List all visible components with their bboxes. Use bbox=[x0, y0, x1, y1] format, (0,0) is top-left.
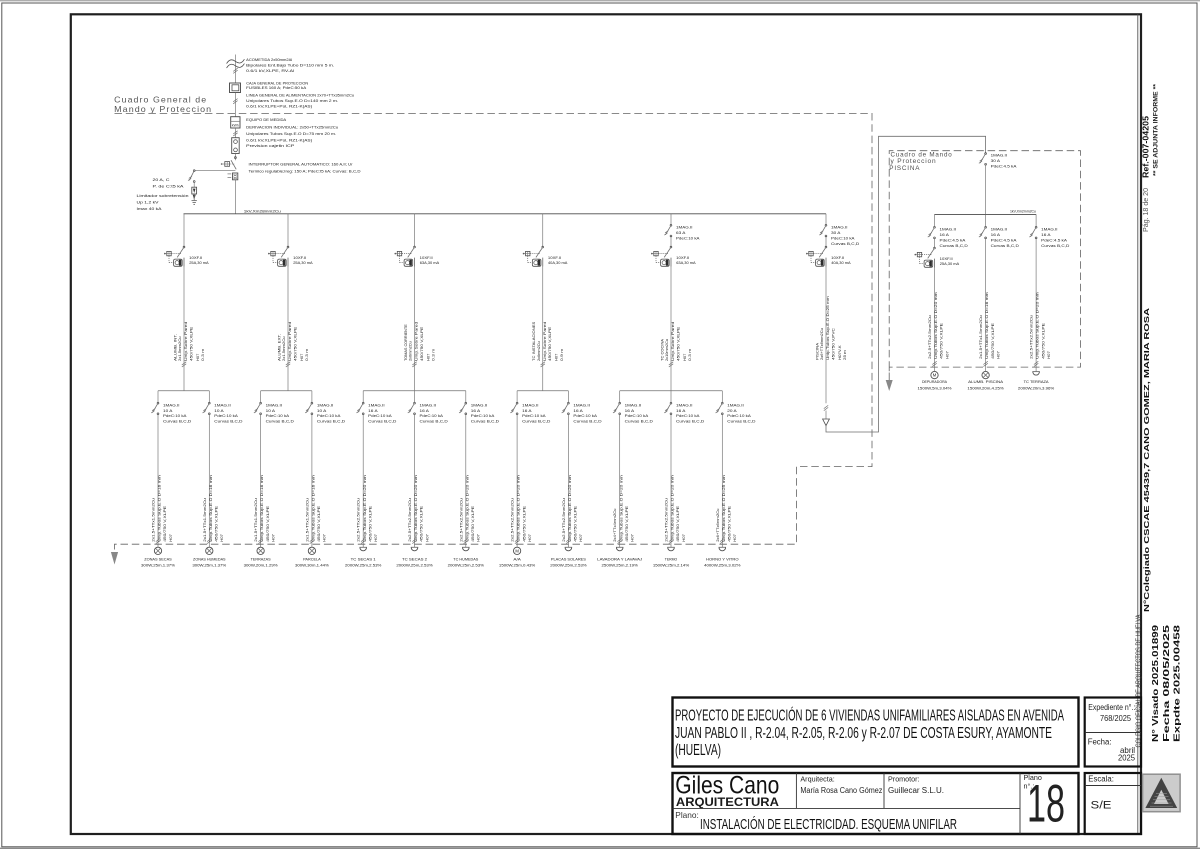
svg-text:450/750 V,XLPE: 450/750 V,XLPE bbox=[727, 506, 732, 542]
svg-text:Unip.Tubos Sup.E.O D=20 mm: Unip.Tubos Sup.E.O D=20 mm bbox=[670, 474, 675, 541]
svg-text:16 A: 16 A bbox=[940, 232, 950, 237]
svg-text:16 A: 16 A bbox=[1041, 232, 1051, 237]
svg-text:450/750 V,XLPE: 450/750 V,XLPE bbox=[675, 326, 680, 361]
svg-text:1MAG.II: 1MAG.II bbox=[266, 402, 282, 407]
svg-text:2x2.5+TTx2.5mm2Cu: 2x2.5+TTx2.5mm2Cu bbox=[1029, 315, 1034, 359]
svg-text:2000W,25m,2.53%: 2000W,25m,2.53% bbox=[550, 562, 587, 567]
svg-text:H07: H07 bbox=[373, 533, 378, 541]
svg-text:2000W,25m,2.53%: 2000W,25m,2.53% bbox=[448, 562, 485, 567]
svg-text:PdeC:10 kA: PdeC:10 kA bbox=[727, 413, 751, 418]
svg-text:30 A: 30 A bbox=[991, 158, 1001, 163]
svg-text:63A,30 mA: 63A,30 mA bbox=[420, 260, 440, 265]
svg-text:63 A: 63 A bbox=[676, 230, 686, 235]
svg-text:10 A: 10 A bbox=[317, 408, 327, 413]
svg-text:Curvas B,C,D: Curvas B,C,D bbox=[573, 419, 601, 424]
svg-text:10XF.II: 10XF.II bbox=[548, 255, 561, 260]
svg-text:2x1.5+TTx1.5mm2Cu: 2x1.5+TTx1.5mm2Cu bbox=[978, 315, 983, 359]
svg-text:25A,30 mA: 25A,30 mA bbox=[293, 260, 313, 265]
svg-text:1MAG.II: 1MAG.II bbox=[625, 402, 641, 407]
svg-text:Cuadro General de: Cuadro General de bbox=[114, 94, 207, 104]
svg-text:TC SECAS 2: TC SECAS 2 bbox=[402, 556, 427, 561]
svg-text:16 A: 16 A bbox=[522, 408, 532, 413]
svg-text:Unipolares Tubos Sup.E.O D=75: Unipolares Tubos Sup.E.O D=75 mm 20 m. bbox=[246, 131, 336, 136]
svg-text:María Rosa Cano Gómez: María Rosa Cano Gómez bbox=[800, 786, 882, 795]
svg-text:10XF.II: 10XF.II bbox=[420, 255, 433, 260]
svg-text:Curvas B,C,D: Curvas B,C,D bbox=[676, 419, 704, 424]
svg-text:PdeC:10 kA: PdeC:10 kA bbox=[214, 413, 238, 418]
svg-text:1MAG.II: 1MAG.II bbox=[940, 226, 956, 231]
svg-text:H07: H07 bbox=[299, 353, 304, 361]
svg-text:Ref.-007-04205: Ref.-007-04205 bbox=[1141, 115, 1150, 178]
svg-text:2x1.5+TTx1.5mm2Cu: 2x1.5+TTx1.5mm2Cu bbox=[202, 498, 207, 542]
svg-text:Unip.Tubos Sup.E.O D=20 mm: Unip.Tubos Sup.E.O D=20 mm bbox=[362, 474, 367, 541]
svg-text:EQUIPO DE MEDIDA: EQUIPO DE MEDIDA bbox=[246, 117, 286, 122]
svg-text:H07: H07 bbox=[578, 533, 583, 541]
svg-text:450/750 V,XLPE: 450/750 V,XLPE bbox=[470, 506, 475, 542]
svg-text:Curvas B,C,D: Curvas B,C,D bbox=[471, 419, 499, 424]
svg-text:H07: H07 bbox=[630, 533, 635, 541]
svg-text:Curvas B,C,D: Curvas B,C,D bbox=[831, 241, 859, 246]
svg-text:PROYECTO DE EJECUCIÓN DE 6 VIV: PROYECTO DE EJECUCIÓN DE 6 VIVIENDAS UNI… bbox=[675, 708, 1064, 725]
svg-text:Mando y Proteccion: Mando y Proteccion bbox=[114, 104, 212, 114]
svg-text:450/750 V,XLPE: 450/750 V,XLPE bbox=[675, 506, 680, 542]
svg-text:10XF.II: 10XF.II bbox=[940, 256, 953, 261]
svg-text:20 A: 20 A bbox=[727, 408, 737, 413]
svg-text:Pág. 18 de 20: Pág. 18 de 20 bbox=[1143, 188, 1150, 232]
svg-text:PdeC:10 kA: PdeC:10 kA bbox=[522, 413, 546, 418]
svg-text:1MAG.II: 1MAG.II bbox=[991, 153, 1007, 158]
svg-text:1MAG.II: 1MAG.II bbox=[676, 225, 692, 230]
svg-text:Unip.Sobre Pared: Unip.Sobre Pared bbox=[414, 322, 419, 361]
svg-text:PdeC:10 kA: PdeC:10 kA bbox=[573, 413, 597, 418]
svg-text:1MAG.II: 1MAG.II bbox=[214, 402, 230, 407]
svg-text:2x2.5+TTx2.5mm2Cu: 2x2.5+TTx2.5mm2Cu bbox=[458, 498, 463, 542]
svg-text:Unip.Tubos Sup.E.O D=20 mm: Unip.Tubos Sup.E.O D=20 mm bbox=[413, 474, 418, 541]
svg-text:JUAN PABLO II , R-2.04, R-2.0: JUAN PABLO II , R-2.04, R-2.05, R-2.06 y… bbox=[675, 725, 1052, 742]
svg-text:H07: H07 bbox=[219, 533, 224, 541]
svg-text:DERIVACION INDIVIDUAL: 2x50+TT: DERIVACION INDIVIDUAL: 2x50+TTx25mm2Cu bbox=[246, 124, 338, 129]
svg-text:ZONAS SECAS: ZONAS SECAS bbox=[144, 556, 172, 561]
svg-text:Curvas B,C,D: Curvas B,C,D bbox=[625, 419, 653, 424]
svg-text:Curvas B,C,D: Curvas B,C,D bbox=[163, 419, 191, 424]
svg-text:A/A: A/A bbox=[513, 556, 521, 561]
svg-text:25A,30 mA: 25A,30 mA bbox=[189, 260, 209, 265]
svg-text:HORNO Y VITRO: HORNO Y VITRO bbox=[706, 556, 739, 561]
svg-text:Unip.Sobre Pared: Unip.Sobre Pared bbox=[542, 322, 547, 361]
svg-text:Unip.Tubos Sup.E.O D=25 mm: Unip.Tubos Sup.E.O D=25 mm bbox=[825, 296, 830, 360]
svg-text:30 A: 30 A bbox=[831, 230, 841, 235]
svg-text:PdeC:10 kA: PdeC:10 kA bbox=[676, 235, 700, 240]
svg-text:450/750 V,PVC: 450/750 V,PVC bbox=[830, 328, 835, 360]
svg-text:Bipolares Ent.Bajo Tubo D=110: Bipolares Ent.Bajo Tubo D=110 mm 5 m. bbox=[246, 63, 334, 68]
svg-text:10 A: 10 A bbox=[214, 408, 224, 413]
svg-text:Imax 40 kA: Imax 40 kA bbox=[137, 206, 162, 211]
svg-text:PdeC:4.5 kA: PdeC:4.5 kA bbox=[940, 237, 966, 242]
svg-text:10 A: 10 A bbox=[163, 408, 173, 413]
svg-text:1500W,25m,0.43%: 1500W,25m,0.43% bbox=[499, 562, 536, 567]
svg-text:2x1.5+TTx1.5mm2Cu: 2x1.5+TTx1.5mm2Cu bbox=[151, 498, 156, 542]
svg-text:Curvas B,C,D: Curvas B,C,D bbox=[991, 243, 1019, 248]
svg-text:H07: H07 bbox=[681, 533, 686, 541]
svg-text:2x2.5+TTx2.5mm2Cu: 2x2.5+TTx2.5mm2Cu bbox=[664, 498, 669, 542]
svg-text:H07: H07 bbox=[527, 533, 532, 541]
svg-text:450/750 V,XLPE: 450/750 V,XLPE bbox=[367, 506, 372, 542]
svg-text:H07: H07 bbox=[425, 353, 430, 361]
svg-text:DEPURADORA: DEPURADORA bbox=[922, 379, 947, 384]
svg-text:M: M bbox=[933, 373, 937, 378]
svg-text:H07: H07 bbox=[322, 533, 327, 541]
svg-text:PdeC:10 kA: PdeC:10 kA bbox=[420, 413, 444, 418]
svg-text:H07: H07 bbox=[168, 533, 173, 541]
svg-text:300W,25m,1.37%: 300W,25m,1.37% bbox=[141, 562, 175, 567]
svg-text:10XF.II: 10XF.II bbox=[676, 255, 689, 260]
svg-text:18: 18 bbox=[1027, 775, 1065, 834]
svg-text:0.6/1 kV,XLPE+Pol, RZ1-K(AS): 0.6/1 kV,XLPE+Pol, RZ1-K(AS) bbox=[246, 103, 313, 108]
svg-text:H07: H07 bbox=[995, 350, 1000, 358]
svg-text:M: M bbox=[515, 548, 519, 553]
svg-text:1MAG.II: 1MAG.II bbox=[522, 402, 538, 407]
svg-text:25 m: 25 m bbox=[842, 349, 847, 360]
svg-text:16 A: 16 A bbox=[625, 408, 635, 413]
svg-text:FUSIBLES 160 A; PdeC:50 kA: FUSIBLES 160 A; PdeC:50 kA bbox=[246, 85, 306, 90]
svg-text:25A,30 mA: 25A,30 mA bbox=[940, 261, 960, 266]
svg-text:TC SECAS 1: TC SECAS 1 bbox=[351, 556, 376, 561]
svg-text:ALUMB. PISCINA: ALUMB. PISCINA bbox=[968, 379, 1003, 384]
svg-text:2x2.5+TTx2.5mm2Cu: 2x2.5+TTx2.5mm2Cu bbox=[407, 498, 412, 542]
svg-text:Up 1,2 kV: Up 1,2 kV bbox=[137, 200, 159, 205]
svg-text:2x1.5mm2Cu: 2x1.5mm2Cu bbox=[281, 337, 286, 362]
svg-text:63A,30 mA: 63A,30 mA bbox=[676, 260, 696, 265]
svg-text:INTERRUPTOR GENERAL AUTOMATICO: INTERRUPTOR GENERAL AUTOMATICO: 160 A,II… bbox=[249, 162, 354, 167]
svg-text:450/750 V,XLPE: 450/750 V,XLPE bbox=[292, 326, 297, 361]
svg-text:2x2.5+TTx2.5mm2Cu: 2x2.5+TTx2.5mm2Cu bbox=[561, 498, 566, 542]
svg-text:H07: H07 bbox=[682, 353, 687, 361]
svg-text:PLACAS SOLARES: PLACAS SOLARES bbox=[551, 556, 586, 561]
svg-text:2000W,25m,2.53%: 2000W,25m,2.53% bbox=[345, 562, 382, 567]
svg-text:Guillecar S.L.U.: Guillecar S.L.U. bbox=[888, 786, 944, 795]
svg-text:Curvas B,C,D: Curvas B,C,D bbox=[522, 419, 550, 424]
svg-text:Curvas B,C,D: Curvas B,C,D bbox=[420, 419, 448, 424]
svg-text:Unip.Tubos Sup.E.O D=20 mm: Unip.Tubos Sup.E.O D=20 mm bbox=[567, 474, 572, 541]
svg-text:1kV,Xm28mm2Cu: 1kV,Xm28mm2Cu bbox=[244, 210, 281, 214]
svg-text:H07: H07 bbox=[944, 350, 949, 358]
svg-text:16 A: 16 A bbox=[676, 408, 686, 413]
svg-text:PdeC:10 kA: PdeC:10 kA bbox=[676, 413, 700, 418]
svg-text:450/750 V,XLPE: 450/750 V,XLPE bbox=[162, 506, 167, 542]
svg-text:Unip.Tubos Sup.E.O D=16 mm: Unip.Tubos Sup.E.O D=16 mm bbox=[984, 292, 989, 359]
svg-text:1MAG.II: 1MAG.II bbox=[163, 402, 179, 407]
svg-text:1MAG.II: 1MAG.II bbox=[368, 402, 384, 407]
svg-text:1MAG.II: 1MAG.II bbox=[831, 225, 847, 230]
svg-text:PdeC:4.5 kA: PdeC:4.5 kA bbox=[991, 237, 1017, 242]
svg-text:1MAG.II: 1MAG.II bbox=[420, 402, 436, 407]
svg-text:768/2025: 768/2025 bbox=[1100, 714, 1131, 723]
svg-text:2000W,20m,3.96%: 2000W,20m,3.96% bbox=[1018, 386, 1055, 391]
svg-text:Unipolares Tubos Sup.E.O D=14: Unipolares Tubos Sup.E.O D=140 mm 2 m. bbox=[246, 98, 338, 103]
svg-text:Limitador sobretensión: Limitador sobretensión bbox=[137, 193, 189, 198]
svg-text:PdeC:10 kA: PdeC:10 kA bbox=[317, 413, 341, 418]
svg-text:PdeC:10 kA: PdeC:10 kA bbox=[368, 413, 392, 418]
svg-text:0.3 m: 0.3 m bbox=[687, 348, 692, 361]
svg-text:450/750 V,XLPE: 450/750 V,XLPE bbox=[521, 506, 526, 542]
svg-text:2x1.5+TTx1.5mm2Cu: 2x1.5+TTx1.5mm2Cu bbox=[253, 498, 258, 542]
svg-text:kWh: kWh bbox=[232, 123, 239, 127]
svg-text:2x2.5+TTx2.5mm2Cu: 2x2.5+TTx2.5mm2Cu bbox=[356, 498, 361, 542]
svg-text:TC TERRAZA: TC TERRAZA bbox=[1024, 379, 1049, 384]
svg-text:450/750 V,XLPE: 450/750 V,XLPE bbox=[188, 326, 193, 361]
svg-text:Escala:: Escala: bbox=[1088, 774, 1114, 783]
svg-text:Curvas B,C,D: Curvas B,C,D bbox=[266, 419, 294, 424]
svg-text:ACOMETIDA 2x50mm2Al: ACOMETIDA 2x50mm2Al bbox=[246, 57, 292, 62]
svg-text:(HUELVA): (HUELVA) bbox=[675, 742, 721, 759]
svg-text:300W,30m,1.44%: 300W,30m,1.44% bbox=[295, 562, 329, 567]
svg-text:10XF.II: 10XF.II bbox=[831, 255, 844, 260]
svg-text:TERMO: TERMO bbox=[665, 556, 678, 561]
svg-text:1MAG.II: 1MAG.II bbox=[676, 402, 692, 407]
svg-text:Curvas B,C,D: Curvas B,C,D bbox=[1041, 243, 1069, 248]
svg-text:PISCINA: PISCINA bbox=[889, 165, 920, 172]
svg-text:450/750 V,XLPE: 450/750 V,XLPE bbox=[1040, 323, 1045, 359]
svg-text:Unip.Sobre Pared: Unip.Sobre Pared bbox=[287, 322, 292, 361]
svg-text:300W,20m,1.29%: 300W,20m,1.29% bbox=[244, 562, 278, 567]
svg-text:PdeC:10 kA: PdeC:10 kA bbox=[266, 413, 290, 418]
svg-text:PdeC:10 kA: PdeC:10 kA bbox=[625, 413, 649, 418]
svg-text:Prevision cajetin ICP: Prevision cajetin ICP bbox=[246, 143, 294, 148]
svg-text:Unip.Tubos Sup.E.O D=20 mm: Unip.Tubos Sup.E.O D=20 mm bbox=[464, 474, 469, 541]
svg-text:450/750 V,XLPE: 450/750 V,XLPE bbox=[419, 506, 424, 542]
svg-text:2x10mm2Cu: 2x10mm2Cu bbox=[664, 339, 669, 361]
svg-text:2500W,25m,2.19%: 2500W,25m,2.19% bbox=[602, 562, 639, 567]
svg-text:Unip.Sobre Pared: Unip.Sobre Pared bbox=[670, 322, 675, 361]
svg-text:PdeC:10 kA: PdeC:10 kA bbox=[163, 413, 187, 418]
svg-text:4000W,25m,3.02%: 4000W,25m,3.02% bbox=[704, 562, 741, 567]
svg-text:1MAG.II: 1MAG.II bbox=[991, 226, 1007, 231]
svg-text:Fecha:: Fecha: bbox=[1088, 738, 1112, 747]
svg-text:450/750 V,XLPE: 450/750 V,XLPE bbox=[624, 506, 629, 542]
svg-text:40A,30 mA: 40A,30 mA bbox=[548, 260, 568, 265]
svg-text:H07: H07 bbox=[270, 533, 275, 541]
svg-text:LAVADORA Y LAVAVAJ: LAVADORA Y LAVAVAJ bbox=[597, 556, 642, 561]
svg-text:2x6mm2Cu: 2x6mm2Cu bbox=[536, 341, 541, 361]
svg-text:Unip.Tubos Sup.E.O D=16 mm: Unip.Tubos Sup.E.O D=16 mm bbox=[208, 474, 213, 541]
svg-text:2x6+TTx6mm2Cu: 2x6+TTx6mm2Cu bbox=[819, 328, 824, 360]
svg-text:20 A, C: 20 A, C bbox=[153, 177, 170, 182]
svg-text:Unip.Tubos Sup.E.O D=16 mm: Unip.Tubos Sup.E.O D=16 mm bbox=[157, 474, 162, 541]
svg-text:Unip.Tubos Sup.E.O D=20 mm: Unip.Tubos Sup.E.O D=20 mm bbox=[1035, 292, 1040, 359]
svg-text:Curvas B,C,D: Curvas B,C,D bbox=[727, 419, 755, 424]
svg-text:Unip.Tubos Sup.E.O D=16 mm: Unip.Tubos Sup.E.O D=16 mm bbox=[259, 474, 264, 541]
svg-text:** SE ADJUNTA INFORME **: ** SE ADJUNTA INFORME ** bbox=[1153, 83, 1160, 176]
svg-text:0.3 m: 0.3 m bbox=[431, 348, 436, 361]
svg-text:450/750 V,XLPE: 450/750 V,XLPE bbox=[265, 506, 270, 542]
svg-text:450/750 V,XLPE: 450/750 V,XLPE bbox=[573, 506, 578, 542]
svg-text:H07: H07 bbox=[732, 533, 737, 541]
svg-text:1MAG.II: 1MAG.II bbox=[573, 402, 589, 407]
svg-text:PdeC:10 kA: PdeC:10 kA bbox=[471, 413, 495, 418]
svg-text:Arquitecta:: Arquitecta: bbox=[800, 774, 834, 783]
svg-text:450/750 V,XLPE: 450/750 V,XLPE bbox=[939, 323, 944, 359]
svg-text:10XF.II: 10XF.II bbox=[293, 255, 306, 260]
svg-text:2025: 2025 bbox=[1118, 754, 1136, 763]
svg-text:300W,25m,1.37%: 300W,25m,1.37% bbox=[192, 562, 226, 567]
svg-text:Curvas B,C,D: Curvas B,C,D bbox=[214, 419, 242, 424]
svg-text:Unip.Tubos Sup.E.O D=25 mm: Unip.Tubos Sup.E.O D=25 mm bbox=[721, 474, 726, 541]
svg-text:Expediente n°.:: Expediente n°.: bbox=[1088, 703, 1135, 712]
svg-text:40A,30 mA: 40A,30 mA bbox=[831, 260, 851, 265]
svg-text:INSTALACIÓN DE ELECTRICIDAD. E: INSTALACIÓN DE ELECTRICIDAD. ESQUEMA UNI… bbox=[700, 816, 957, 833]
svg-text:H07: H07 bbox=[424, 533, 429, 541]
svg-text:1MAG.II: 1MAG.II bbox=[1041, 226, 1057, 231]
svg-text:COLEGIO OFICIAL DE ARQUITECTOS: COLEGIO OFICIAL DE ARQUITECTOS DE HUELVA bbox=[1134, 614, 1143, 747]
svg-text:1500W,5m,3.04%: 1500W,5m,3.04% bbox=[918, 386, 952, 391]
svg-text:Curvas B,C,D: Curvas B,C,D bbox=[368, 419, 396, 424]
svg-text:H07: H07 bbox=[195, 353, 200, 361]
svg-text:Curvas B,C,D: Curvas B,C,D bbox=[940, 243, 968, 248]
svg-text:450/750 V,XLPE: 450/750 V,XLPE bbox=[419, 326, 424, 361]
svg-text:PdeC:4.5 kA: PdeC:4.5 kA bbox=[991, 164, 1017, 169]
svg-text:0.3 m: 0.3 m bbox=[200, 348, 205, 361]
svg-text:Plano:: Plano: bbox=[675, 810, 699, 820]
svg-text:450/750 V,XLPE: 450/750 V,XLPE bbox=[990, 323, 995, 359]
svg-text:TERRAZAS: TERRAZAS bbox=[251, 556, 271, 561]
svg-text:2x2.5+TTx2.5mm2Cu: 2x2.5+TTx2.5mm2Cu bbox=[510, 498, 515, 542]
svg-text:1MAG.II: 1MAG.II bbox=[727, 402, 743, 407]
svg-text:450/750 V,XLPE: 450/750 V,XLPE bbox=[316, 506, 321, 542]
svg-text:2x6+TTx6mm2Cu: 2x6+TTx6mm2Cu bbox=[715, 509, 720, 542]
svg-text:Unip.Sobre Pared: Unip.Sobre Pared bbox=[183, 322, 188, 361]
svg-text:2x6mm2Cu: 2x6mm2Cu bbox=[408, 341, 413, 361]
svg-text:PdeC:4.5 kA: PdeC:4.5 kA bbox=[1041, 237, 1067, 242]
svg-text:N°Colegiado CSCAE 45439,7 CA: N°Colegiado CSCAE 45439,7 CANO GOMEZ, MA… bbox=[1142, 307, 1151, 612]
svg-text:1kV,Xm2mm2Cu: 1kV,Xm2mm2Cu bbox=[1010, 210, 1036, 214]
svg-text:TC HUMEDAS: TC HUMEDAS bbox=[453, 556, 478, 561]
svg-text:Unip.Tubos Sup.E.O D=20 mm: Unip.Tubos Sup.E.O D=20 mm bbox=[618, 474, 623, 541]
svg-text:ZONAS HUMEDAS: ZONAS HUMEDAS bbox=[193, 556, 226, 561]
svg-text:Promotor:: Promotor: bbox=[888, 774, 920, 783]
svg-text:Termico regulable;Ireg: 150 A;: Termico regulable;Ireg: 150 A; PdeC:t5 k… bbox=[249, 169, 361, 174]
svg-text:10 A: 10 A bbox=[266, 408, 276, 413]
svg-text:LINEA GENERAL DE ALIMENTACION: LINEA GENERAL DE ALIMENTACION 2x70+TTx35… bbox=[246, 93, 354, 98]
svg-text:1500W,25m,2.14%: 1500W,25m,2.14% bbox=[653, 562, 690, 567]
svg-text:0.3 m: 0.3 m bbox=[304, 348, 309, 361]
svg-text:P. de C:t5 kA: P. de C:t5 kA bbox=[153, 184, 184, 189]
svg-text:1MAG.II: 1MAG.II bbox=[317, 402, 333, 407]
svg-text:PdeC:10 kA: PdeC:10 kA bbox=[831, 235, 855, 240]
svg-text:H07: H07 bbox=[476, 533, 481, 541]
svg-text:H07V-K: H07V-K bbox=[837, 345, 842, 360]
svg-text:0.9 m: 0.9 m bbox=[559, 348, 564, 361]
svg-text:450/750 V,XLPE: 450/750 V,XLPE bbox=[214, 506, 219, 542]
svg-text:16 A: 16 A bbox=[420, 408, 430, 413]
svg-text:16 A: 16 A bbox=[368, 408, 378, 413]
svg-text:16 A: 16 A bbox=[573, 408, 583, 413]
svg-text:16 A: 16 A bbox=[991, 232, 1001, 237]
svg-text:H07: H07 bbox=[554, 353, 559, 361]
svg-text:0.6/1 kV,XLPE+Pol, RZ1-K(AS): 0.6/1 kV,XLPE+Pol, RZ1-K(AS) bbox=[246, 138, 313, 143]
svg-text:Expdte 2025.00458: Expdte 2025.00458 bbox=[1172, 624, 1181, 742]
svg-text:2x4+TTx4mm2Cu: 2x4+TTx4mm2Cu bbox=[612, 509, 617, 542]
svg-text:Unip.Tubos Sup.E.O D=16 mm: Unip.Tubos Sup.E.O D=16 mm bbox=[311, 474, 316, 541]
svg-text:H07: H07 bbox=[1046, 350, 1051, 358]
svg-text:16 A: 16 A bbox=[471, 408, 481, 413]
svg-text:0.6/1 kV,XLPE, RV-Al: 0.6/1 kV,XLPE, RV-Al bbox=[246, 68, 294, 73]
svg-text:2x2.5+TTx2.5mm2Cu: 2x2.5+TTx2.5mm2Cu bbox=[927, 315, 932, 359]
svg-text:Unip.Tubos Sup.E.O D=20 mm: Unip.Tubos Sup.E.O D=20 mm bbox=[516, 474, 521, 541]
svg-text:Unip.Tubos Sup.E.O D=20 mm: Unip.Tubos Sup.E.O D=20 mm bbox=[933, 292, 938, 359]
svg-text:Fecha 08/05/2025: Fecha 08/05/2025 bbox=[1162, 624, 1171, 742]
svg-text:PARCELA: PARCELA bbox=[303, 556, 321, 561]
svg-text:1500W,20m,4.25%: 1500W,20m,4.25% bbox=[967, 386, 1004, 391]
svg-text:ARQUITECTURA: ARQUITECTURA bbox=[676, 795, 779, 809]
svg-text:Curvas B,C,D: Curvas B,C,D bbox=[317, 419, 345, 424]
svg-text:2x1.5+TTx1.5mm2Cu: 2x1.5+TTx1.5mm2Cu bbox=[304, 498, 309, 542]
svg-text:N° Visado 2025.01899: N° Visado 2025.01899 bbox=[1151, 624, 1160, 742]
svg-text:450/750 V,XLPE: 450/750 V,XLPE bbox=[547, 326, 552, 361]
svg-text:1MAG.II: 1MAG.II bbox=[471, 402, 487, 407]
svg-text:2000W,25m,2.53%: 2000W,25m,2.53% bbox=[396, 562, 433, 567]
svg-text:S/E: S/E bbox=[1091, 800, 1112, 812]
svg-text:10XF.II: 10XF.II bbox=[189, 255, 202, 260]
svg-text:2x1.5mm2Cu: 2x1.5mm2Cu bbox=[177, 337, 182, 362]
